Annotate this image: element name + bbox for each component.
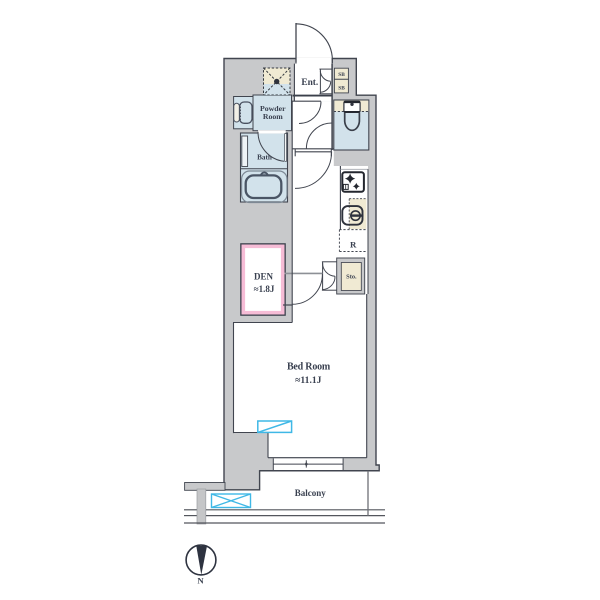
svg-text:SB: SB bbox=[338, 85, 345, 91]
svg-text:≈1.8J: ≈1.8J bbox=[254, 284, 275, 294]
svg-text:≈11.1J: ≈11.1J bbox=[295, 375, 322, 386]
svg-text:DEN: DEN bbox=[254, 272, 274, 282]
svg-text:Room: Room bbox=[263, 112, 283, 121]
svg-text:Bath: Bath bbox=[257, 153, 272, 161]
svg-text:N: N bbox=[197, 576, 204, 586]
svg-text:Balcony: Balcony bbox=[295, 488, 327, 498]
svg-text:Sto.: Sto. bbox=[346, 273, 357, 280]
svg-text:Ent.: Ent. bbox=[301, 78, 318, 88]
svg-text:Bed Room: Bed Room bbox=[287, 361, 331, 372]
svg-text:R: R bbox=[350, 239, 357, 249]
svg-text:SB: SB bbox=[338, 72, 345, 78]
